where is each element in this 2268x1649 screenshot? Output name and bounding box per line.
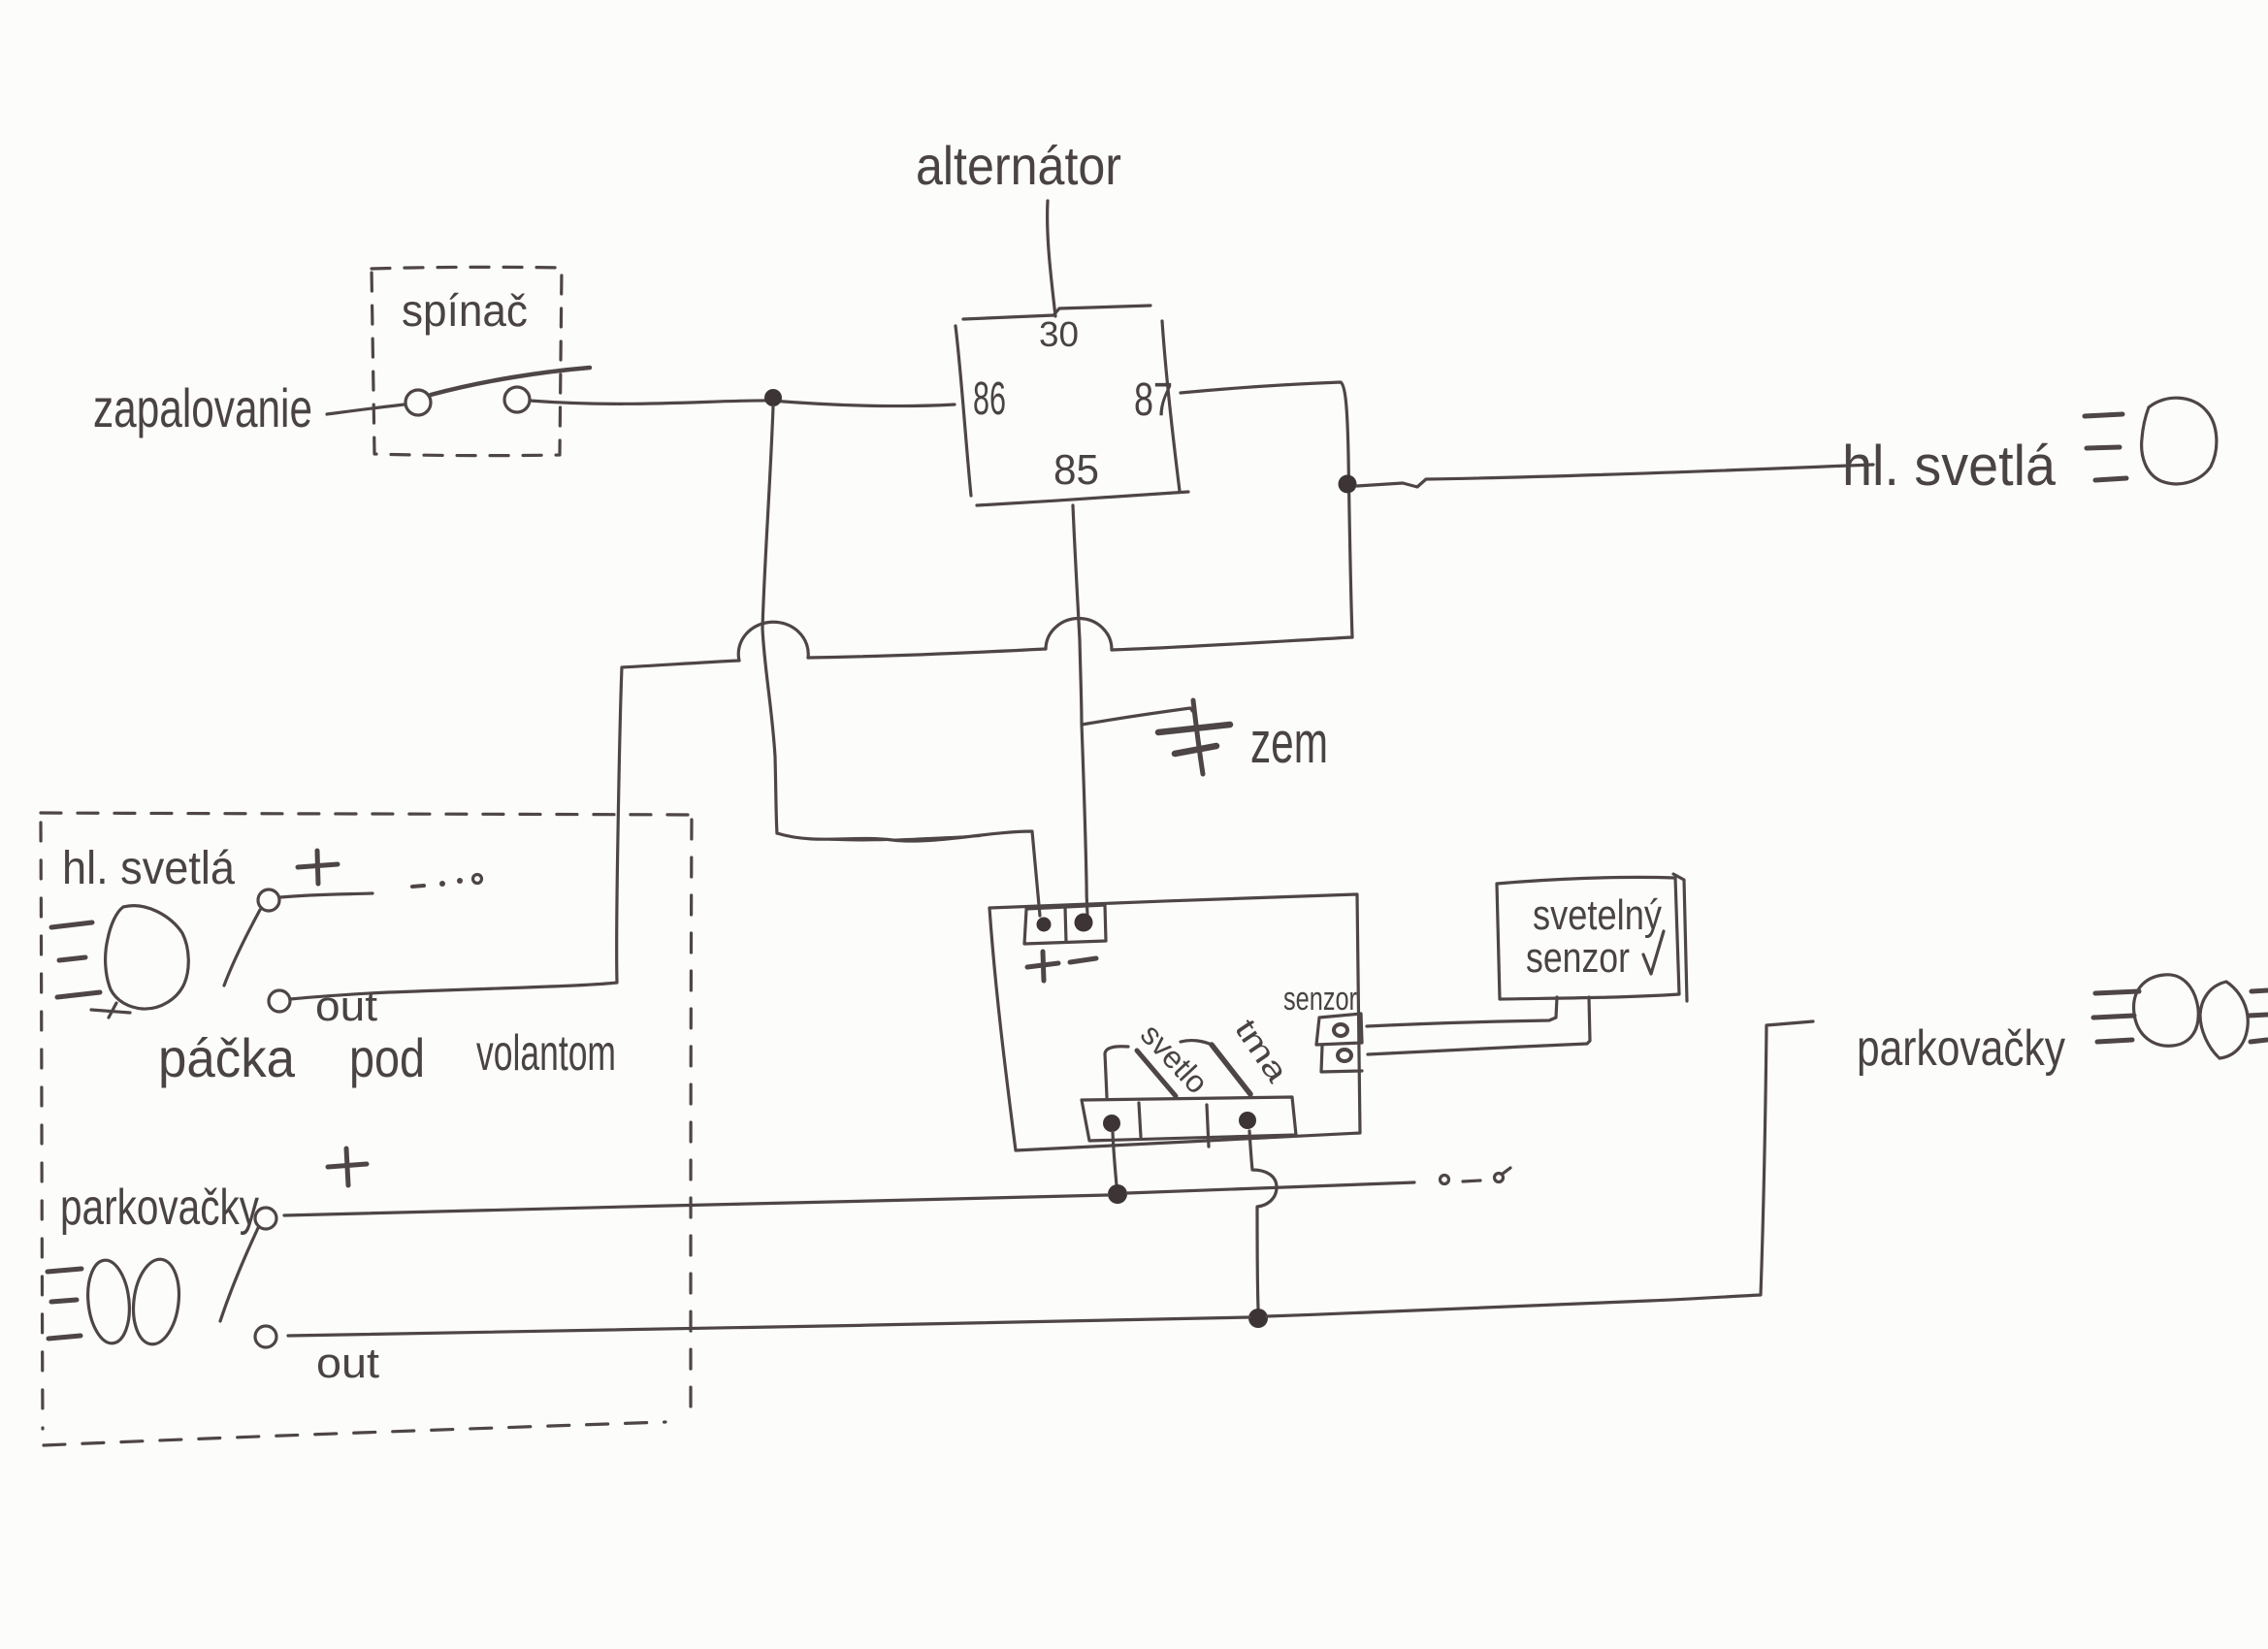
svg-text:85: 85 [1053,446,1099,494]
svg-text:hl. svetlá: hl. svetlá [62,843,235,894]
svg-text:parkovačky: parkovačky [60,1180,259,1236]
svg-text:out: out [316,1340,379,1387]
svg-text:parkovačky: parkovačky [1857,1020,2065,1077]
svg-text:volantom: volantom [476,1025,616,1082]
svg-text:senzor: senzor [1526,934,1630,982]
svg-text:zapalovanie: zapalovanie [93,377,312,438]
svg-text:svetelný: svetelný [1533,891,1662,939]
svg-text:87: 87 [1134,374,1173,426]
svg-text:spínač: spínač [402,285,528,336]
svg-text:alternátor: alternátor [916,135,1121,196]
svg-text:zem: zem [1250,710,1328,775]
svg-text:30: 30 [1039,314,1079,354]
svg-text:senzor: senzor [1283,981,1357,1018]
svg-text:pod: pod [349,1027,425,1088]
svg-text:out: out [315,983,377,1030]
svg-text:hl. svetlá: hl. svetlá [1842,435,2057,498]
svg-text:páčka: páčka [158,1027,296,1088]
svg-text:86: 86 [973,373,1006,425]
